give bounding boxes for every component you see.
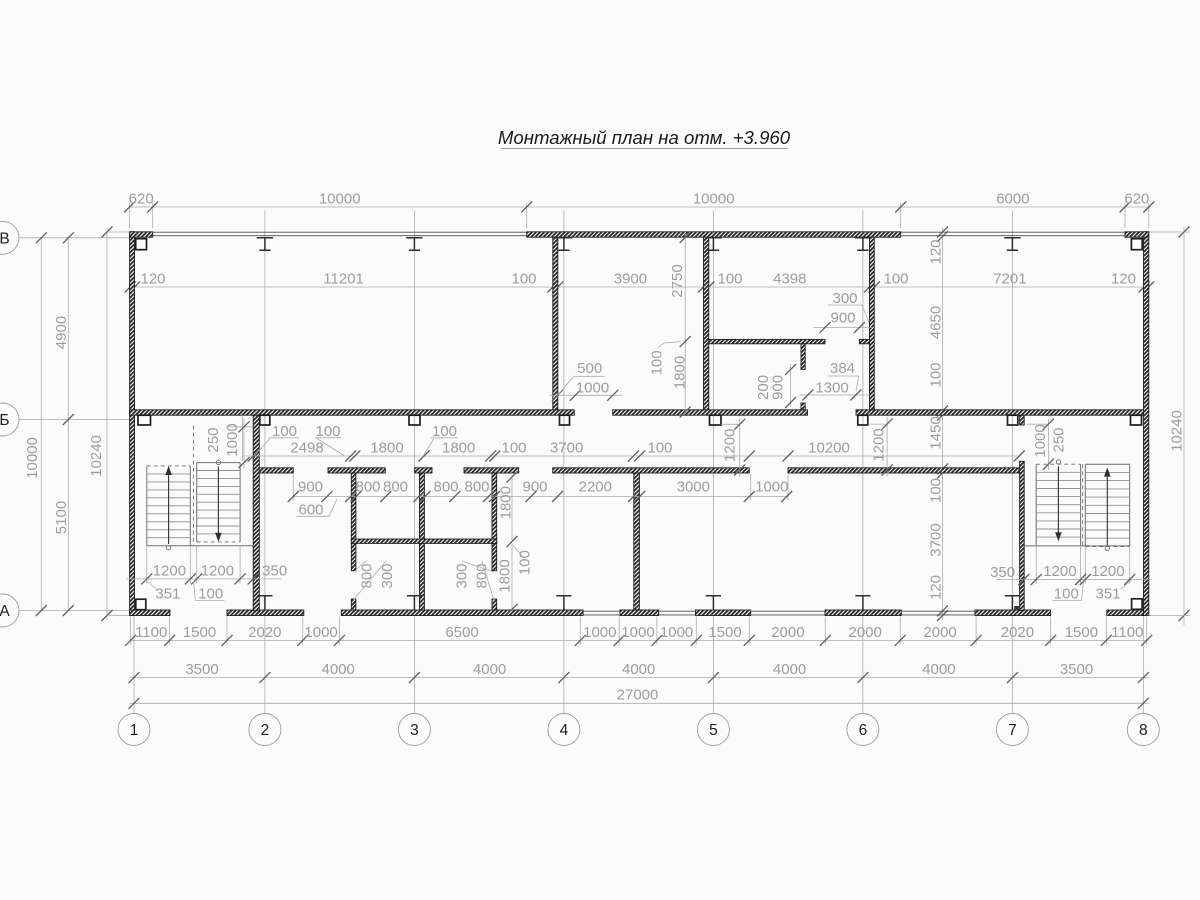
svg-text:100: 100 — [928, 362, 945, 387]
svg-text:900: 900 — [298, 479, 323, 496]
svg-text:100: 100 — [198, 586, 223, 603]
svg-text:250: 250 — [1051, 427, 1068, 452]
svg-text:1200: 1200 — [1043, 563, 1076, 580]
svg-text:6500: 6500 — [445, 624, 478, 641]
svg-text:1000: 1000 — [224, 423, 241, 456]
svg-text:4000: 4000 — [773, 661, 806, 678]
svg-text:1000: 1000 — [621, 624, 654, 641]
svg-text:4650: 4650 — [928, 306, 945, 339]
svg-text:120: 120 — [928, 239, 945, 264]
svg-text:1200: 1200 — [871, 428, 888, 461]
svg-text:1000: 1000 — [1032, 424, 1049, 457]
svg-text:100: 100 — [516, 550, 533, 575]
svg-text:2: 2 — [261, 722, 270, 739]
svg-text:10240: 10240 — [88, 435, 105, 477]
svg-text:4398: 4398 — [773, 271, 806, 288]
svg-text:3500: 3500 — [1060, 661, 1093, 678]
svg-text:800: 800 — [383, 479, 408, 496]
svg-text:2000: 2000 — [849, 624, 882, 641]
svg-text:350: 350 — [262, 563, 287, 580]
svg-text:300: 300 — [454, 563, 471, 588]
svg-text:6000: 6000 — [996, 191, 1029, 208]
svg-text:7201: 7201 — [993, 271, 1026, 288]
svg-text:300: 300 — [379, 563, 396, 588]
svg-text:В: В — [0, 230, 10, 247]
svg-text:2200: 2200 — [579, 479, 612, 496]
svg-text:800: 800 — [433, 479, 458, 496]
svg-text:1100: 1100 — [135, 624, 167, 641]
svg-text:100: 100 — [717, 271, 742, 288]
svg-text:Монтажный план на отм. +3.960: Монтажный план на отм. +3.960 — [498, 127, 791, 148]
svg-text:3700: 3700 — [550, 440, 583, 457]
svg-text:4000: 4000 — [322, 661, 355, 678]
svg-text:620: 620 — [129, 191, 154, 208]
svg-text:900: 900 — [522, 479, 547, 496]
svg-text:10000: 10000 — [24, 437, 41, 479]
svg-text:100: 100 — [1054, 586, 1079, 603]
svg-text:1800: 1800 — [498, 486, 515, 519]
svg-text:1200: 1200 — [153, 563, 186, 580]
svg-text:100: 100 — [928, 478, 945, 503]
svg-text:900: 900 — [830, 310, 855, 327]
svg-text:1500: 1500 — [708, 624, 741, 641]
svg-text:7: 7 — [1008, 722, 1017, 739]
svg-text:4000: 4000 — [622, 661, 655, 678]
svg-text:300: 300 — [832, 290, 857, 307]
svg-text:4000: 4000 — [473, 661, 506, 678]
svg-text:2750: 2750 — [669, 264, 686, 297]
svg-text:4: 4 — [560, 722, 569, 739]
svg-text:8: 8 — [1139, 722, 1148, 739]
svg-text:2020: 2020 — [248, 624, 281, 641]
svg-text:3900: 3900 — [614, 271, 647, 288]
svg-text:1000: 1000 — [583, 624, 616, 641]
svg-text:120: 120 — [140, 271, 165, 288]
svg-text:1100: 1100 — [1111, 624, 1143, 641]
svg-text:900: 900 — [770, 375, 787, 400]
svg-text:1500: 1500 — [1065, 624, 1098, 641]
svg-text:120: 120 — [1111, 271, 1136, 288]
svg-text:100: 100 — [883, 271, 908, 288]
svg-text:1: 1 — [130, 722, 139, 739]
svg-text:1200: 1200 — [201, 563, 234, 580]
svg-text:1800: 1800 — [672, 356, 689, 389]
svg-text:4900: 4900 — [53, 316, 70, 349]
svg-text:500: 500 — [577, 360, 602, 377]
svg-text:1500: 1500 — [183, 624, 216, 641]
svg-text:100: 100 — [501, 440, 526, 457]
svg-text:1000: 1000 — [660, 624, 693, 641]
svg-text:1300: 1300 — [815, 380, 848, 397]
svg-text:4000: 4000 — [922, 661, 955, 678]
svg-text:1800: 1800 — [442, 440, 475, 457]
svg-text:250: 250 — [205, 427, 222, 452]
svg-text:120: 120 — [928, 575, 945, 600]
svg-text:351: 351 — [1095, 586, 1120, 603]
svg-text:1000: 1000 — [304, 624, 337, 641]
svg-text:2000: 2000 — [923, 624, 956, 641]
svg-text:10000: 10000 — [693, 191, 735, 208]
svg-text:800: 800 — [355, 479, 380, 496]
svg-text:3500: 3500 — [185, 661, 218, 678]
svg-text:А: А — [0, 603, 10, 620]
svg-text:2020: 2020 — [1001, 624, 1034, 641]
svg-text:5: 5 — [709, 722, 718, 739]
svg-text:2000: 2000 — [771, 624, 804, 641]
svg-text:3: 3 — [410, 722, 419, 739]
svg-text:351: 351 — [155, 586, 180, 603]
svg-text:1200: 1200 — [722, 429, 739, 462]
svg-text:3700: 3700 — [928, 523, 945, 556]
svg-text:10000: 10000 — [319, 191, 361, 208]
svg-text:5100: 5100 — [53, 501, 70, 534]
svg-text:620: 620 — [1124, 191, 1149, 208]
svg-text:384: 384 — [830, 360, 855, 377]
svg-text:1200: 1200 — [1091, 563, 1124, 580]
svg-text:1000: 1000 — [755, 479, 788, 496]
svg-text:100: 100 — [649, 350, 666, 375]
svg-text:1000: 1000 — [576, 379, 609, 396]
svg-text:11201: 11201 — [323, 271, 364, 288]
svg-text:800: 800 — [474, 563, 491, 588]
svg-text:3000: 3000 — [677, 479, 710, 496]
svg-text:10200: 10200 — [808, 440, 850, 457]
svg-text:100: 100 — [511, 271, 536, 288]
svg-text:2498: 2498 — [290, 440, 323, 457]
svg-text:100: 100 — [647, 440, 672, 457]
svg-text:6: 6 — [859, 722, 868, 739]
svg-text:10240: 10240 — [1169, 410, 1186, 452]
svg-text:1450: 1450 — [928, 416, 945, 449]
svg-text:1800: 1800 — [496, 559, 513, 592]
svg-text:1800: 1800 — [370, 440, 403, 457]
svg-text:Б: Б — [0, 412, 10, 429]
svg-text:350: 350 — [990, 564, 1015, 581]
svg-text:27000: 27000 — [617, 687, 659, 704]
svg-text:800: 800 — [464, 479, 489, 496]
